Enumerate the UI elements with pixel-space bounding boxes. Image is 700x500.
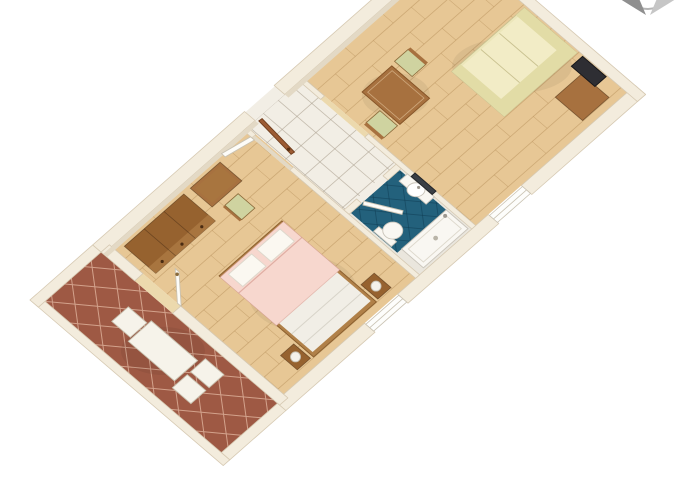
floorplan-image xyxy=(0,0,700,500)
nightstand-lamp xyxy=(371,281,381,291)
wardrobe-knob xyxy=(180,242,183,245)
toilet-bowl xyxy=(383,222,403,239)
tile-grout-line xyxy=(397,173,404,174)
bathtub-drain xyxy=(433,236,438,241)
bathtub-faucet xyxy=(443,214,447,218)
wardrobe-knob xyxy=(161,260,164,263)
terrace-door-handle xyxy=(175,272,179,276)
nightstand-lamp xyxy=(291,352,301,362)
floorplan-svg xyxy=(0,0,700,500)
wardrobe-knob xyxy=(200,225,203,228)
sink-faucet xyxy=(417,186,420,189)
entrance-door-handle xyxy=(287,148,290,151)
